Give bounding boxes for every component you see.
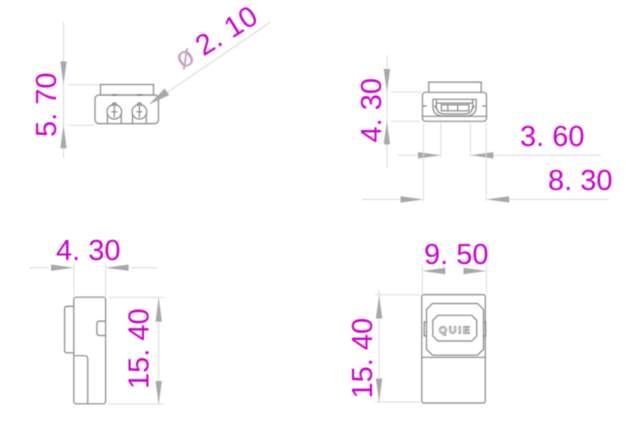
svg-text:8. 30: 8. 30 [548, 165, 613, 197]
svg-text:15. 40: 15. 40 [347, 318, 379, 399]
svg-text:15. 40: 15. 40 [124, 308, 156, 389]
svg-text:5. 70: 5. 70 [31, 73, 63, 138]
svg-text:3. 60: 3. 60 [520, 121, 585, 153]
svg-text:4. 30: 4. 30 [56, 235, 121, 267]
svg-text:QUIE: QUIE [439, 324, 472, 336]
svg-text:4. 30: 4. 30 [356, 78, 388, 143]
svg-text:9. 50: 9. 50 [424, 239, 489, 271]
